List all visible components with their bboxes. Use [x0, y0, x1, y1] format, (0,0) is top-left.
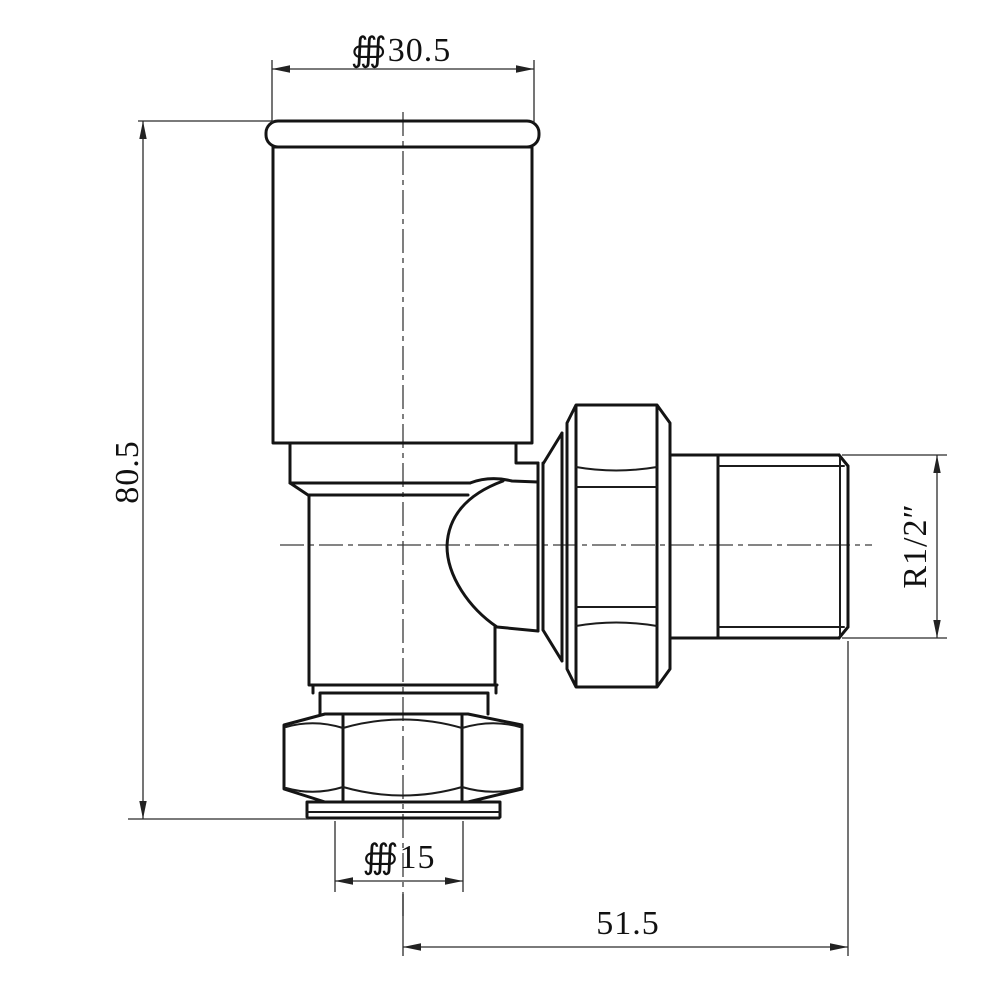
outlet-hex-nut-chamfer-arcs	[576, 467, 657, 626]
dimension-head-diameter-label: ∰30.5	[351, 32, 451, 69]
dimension-outlet-thread-label: R1/2″	[897, 503, 934, 588]
technical-drawing-page: ∰30.5 80.5 R1/2″ ∰15 51.5	[0, 0, 1000, 1000]
arrow-down-icon	[933, 620, 940, 638]
arrow-up-icon	[139, 121, 146, 139]
arrow-right-icon	[516, 65, 534, 73]
arrow-down-icon	[139, 801, 146, 819]
arrow-left-icon	[272, 65, 290, 73]
dimension-outlet-thread: R1/2″	[842, 455, 947, 638]
outlet-bell-curve	[447, 481, 538, 631]
arrow-up-icon	[933, 455, 940, 473]
dimension-inlet-diameter: ∰15	[335, 821, 463, 892]
outlet-shank	[670, 455, 718, 638]
outlet-hex-nut-edges	[576, 406, 657, 686]
dimension-inlet-diameter-label: ∰15	[363, 839, 436, 876]
dimension-head-diameter: ∰30.5	[272, 32, 534, 123]
union-seat	[538, 433, 562, 661]
outlet-thread-minor	[718, 466, 844, 627]
outlet-thread-major	[718, 455, 839, 638]
gland-chamfer	[290, 483, 468, 495]
dimension-overall-height: 80.5	[109, 121, 309, 819]
arrow-right-icon	[830, 943, 848, 951]
dimension-overall-height-label: 80.5	[109, 440, 146, 504]
compression-ring	[313, 685, 496, 714]
dimension-outlet-length-label: 51.5	[596, 905, 660, 942]
gland-nut	[290, 443, 538, 483]
radiator-valve-technical-drawing: ∰30.5 80.5 R1/2″ ∰15 51.5	[0, 0, 1000, 1000]
dimension-overall-height-lines	[128, 121, 309, 819]
arrow-right-icon	[445, 877, 463, 885]
outlet-hex-nut	[567, 405, 670, 687]
arrow-left-icon	[403, 943, 421, 951]
arrow-left-icon	[335, 877, 353, 885]
